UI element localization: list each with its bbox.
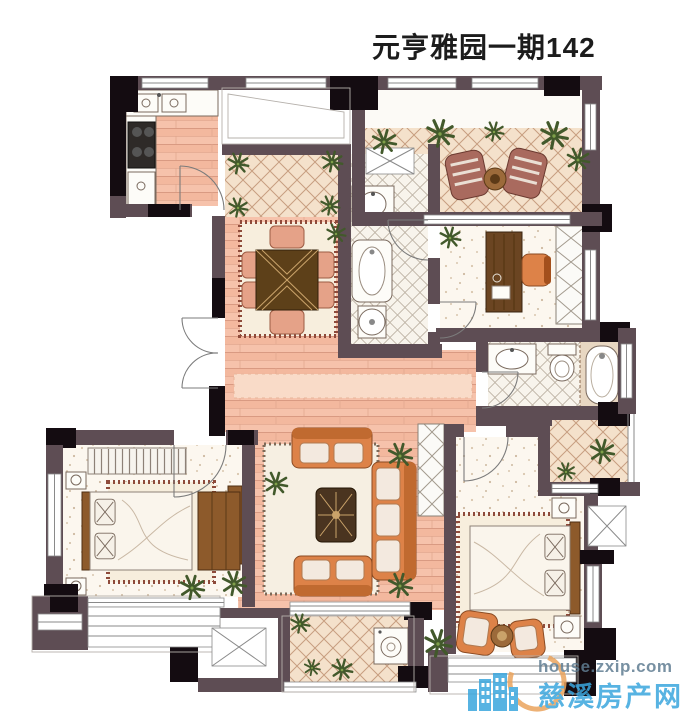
watermark: house.zxip.com 慈溪房产网: [462, 644, 680, 718]
sofa-top: [292, 428, 372, 468]
service-balcony: [374, 628, 408, 664]
corridor-runner-rug: [234, 374, 472, 398]
floor-plan-svg: [0, 0, 680, 718]
bedroom2-bed: [470, 522, 580, 614]
master-bath-sink: [488, 344, 536, 374]
bathtub-master: [580, 340, 624, 410]
toilet: [548, 344, 576, 381]
watermark-building-icon: [468, 672, 522, 712]
master-wardrobe: [88, 448, 186, 474]
master-wardrobe-side: [198, 492, 240, 570]
bedroom2-nightstand-bottom: [554, 616, 580, 638]
lattice-screen: [418, 424, 444, 516]
desk-chair: [522, 254, 551, 286]
master-bed: [82, 492, 192, 570]
bedroom2-nightstand-top: [552, 498, 576, 518]
washing-machine: [374, 628, 408, 664]
pedestal-basin: [358, 306, 386, 338]
entry-door: [182, 318, 218, 388]
sofa-right: [372, 462, 416, 580]
dining-area: [240, 222, 336, 336]
second-bedroom: [455, 498, 580, 660]
bathtub-small: [352, 240, 392, 302]
shaft-flue-bottom: [212, 628, 266, 666]
shaft-flue-top: [366, 148, 414, 174]
floor-plan-page: 元亨雅园一期142 house.zxip.com 慈溪房产网: [0, 0, 680, 718]
sofa-bottom: [294, 556, 372, 596]
kitchen-sink-basin-right: [162, 94, 186, 112]
stove: [128, 122, 155, 168]
watermark-site-text: house.zxip.com: [538, 657, 673, 677]
shaft-flue-right: [588, 506, 626, 546]
watermark-name-text: 慈溪房产网: [538, 675, 680, 714]
nightstand-top: [66, 472, 86, 489]
desk: [486, 232, 522, 312]
fridge: [128, 172, 155, 206]
dining-table: [256, 250, 318, 310]
study-cabinet: [556, 226, 586, 324]
coffee-table: [316, 488, 356, 542]
plan-title: 元亨雅园一期142: [372, 26, 596, 66]
